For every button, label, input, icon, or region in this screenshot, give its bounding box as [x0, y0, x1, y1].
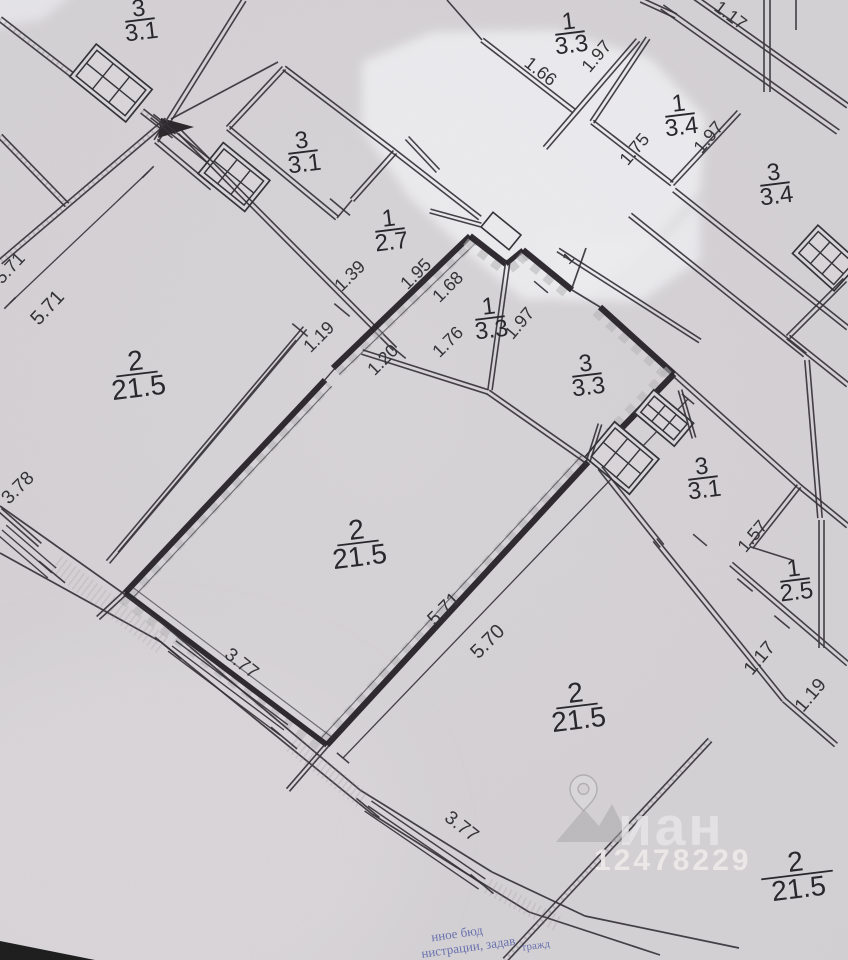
svg-text:3.4: 3.4 — [758, 181, 794, 212]
svg-text:12478229: 12478229 — [594, 844, 751, 877]
svg-text:3.1: 3.1 — [686, 475, 722, 506]
svg-text:3.3: 3.3 — [570, 372, 606, 403]
svg-text:21.5: 21.5 — [110, 369, 168, 406]
svg-text:3.1: 3.1 — [123, 17, 159, 48]
svg-text:3.1: 3.1 — [286, 149, 322, 180]
svg-text:21.5: 21.5 — [550, 701, 608, 738]
svg-text:2.7: 2.7 — [373, 227, 409, 258]
svg-text:2.5: 2.5 — [778, 577, 814, 608]
svg-text:21.5: 21.5 — [770, 870, 828, 907]
svg-text:21.5: 21.5 — [331, 538, 389, 575]
